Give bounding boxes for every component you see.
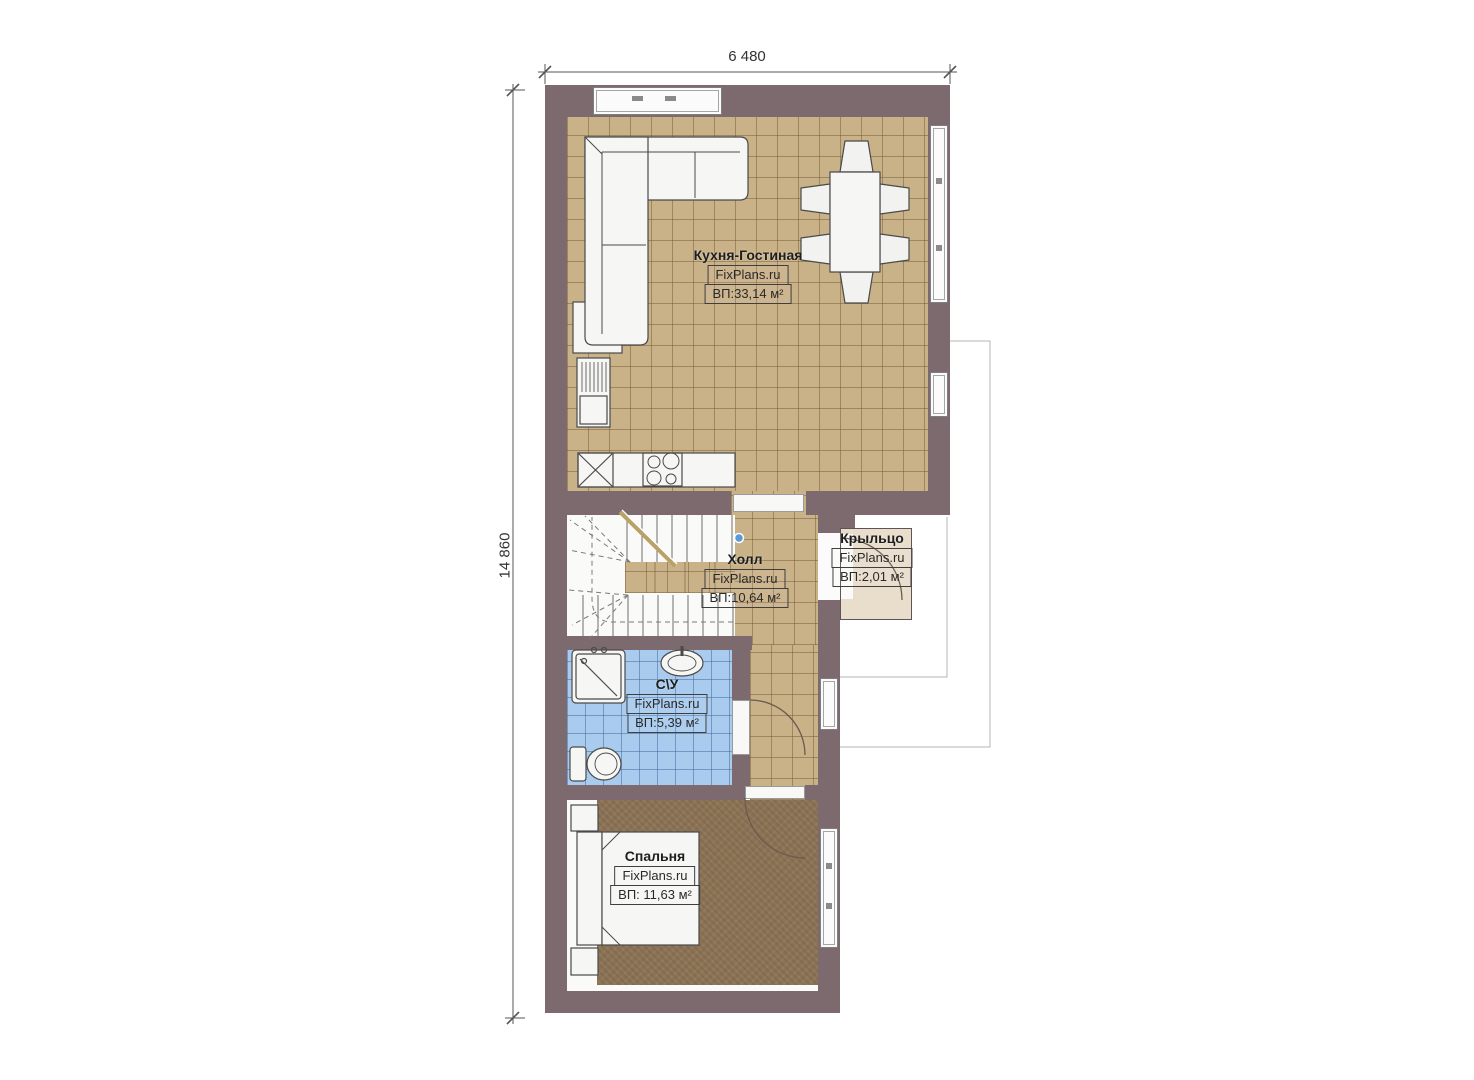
chair bbox=[801, 184, 830, 214]
room-label-bathroom: С\У FixPlans.ru ВП:5,39 м² bbox=[626, 676, 707, 733]
corner-sofa bbox=[585, 137, 748, 345]
bed-headboard bbox=[577, 832, 602, 945]
chair bbox=[840, 272, 873, 303]
watermark-box: FixPlans.ru bbox=[704, 569, 785, 589]
chair bbox=[801, 234, 830, 264]
room-label-bedroom: Спальня FixPlans.ru ВП: 11,63 м² bbox=[610, 848, 700, 905]
nightstand bbox=[571, 805, 598, 831]
room-label-kitchen-living: Кухня-Гостиная FixPlans.ru ВП:33,14 м² bbox=[694, 247, 803, 304]
watermark-box: FixPlans.ru bbox=[831, 548, 912, 568]
chair bbox=[880, 184, 909, 214]
room-name: С\У bbox=[656, 676, 679, 692]
area-box: ВП:2,01 м² bbox=[832, 567, 912, 587]
bathroom-door-arc bbox=[750, 700, 805, 755]
room-name: Крыльцо bbox=[840, 530, 904, 546]
watermark-box: FixPlans.ru bbox=[707, 265, 788, 285]
chair bbox=[880, 234, 909, 264]
watermark-box: FixPlans.ru bbox=[626, 694, 707, 714]
dimension-height-label: 14 860 bbox=[497, 506, 514, 606]
room-label-porch: Крыльцо FixPlans.ru ВП:2,01 м² bbox=[831, 530, 912, 587]
room-name: Спальня bbox=[625, 848, 685, 864]
nightstand bbox=[571, 948, 598, 975]
area-box: ВП:33,14 м² bbox=[704, 284, 791, 304]
kitchen-counter bbox=[578, 453, 735, 487]
room-label-hall: Холл FixPlans.ru ВП:10,64 м² bbox=[701, 551, 788, 608]
room-name: Холл bbox=[727, 551, 762, 567]
dimension-width-label: 6 480 bbox=[697, 48, 797, 65]
dining-table bbox=[830, 172, 880, 272]
room-name: Кухня-Гостиная bbox=[694, 247, 803, 263]
bedroom-door-arc bbox=[745, 798, 805, 858]
chair bbox=[840, 141, 873, 172]
area-box: ВП:5,39 м² bbox=[627, 713, 707, 733]
area-box: ВП: 11,63 м² bbox=[610, 885, 700, 905]
washbasin bbox=[661, 646, 703, 676]
toilet bbox=[570, 747, 621, 781]
selection-handle[interactable] bbox=[735, 534, 744, 543]
window-mullions bbox=[632, 96, 942, 909]
watermark-box: FixPlans.ru bbox=[614, 866, 695, 886]
shower-tray bbox=[572, 648, 625, 704]
plan-linework bbox=[0, 0, 1474, 1080]
area-box: ВП:10,64 м² bbox=[701, 588, 788, 608]
dining-set bbox=[801, 141, 909, 303]
floor-plan-canvas: 6 480 14 860 Кухня-Гостиная FixPlans.ru … bbox=[0, 0, 1474, 1080]
